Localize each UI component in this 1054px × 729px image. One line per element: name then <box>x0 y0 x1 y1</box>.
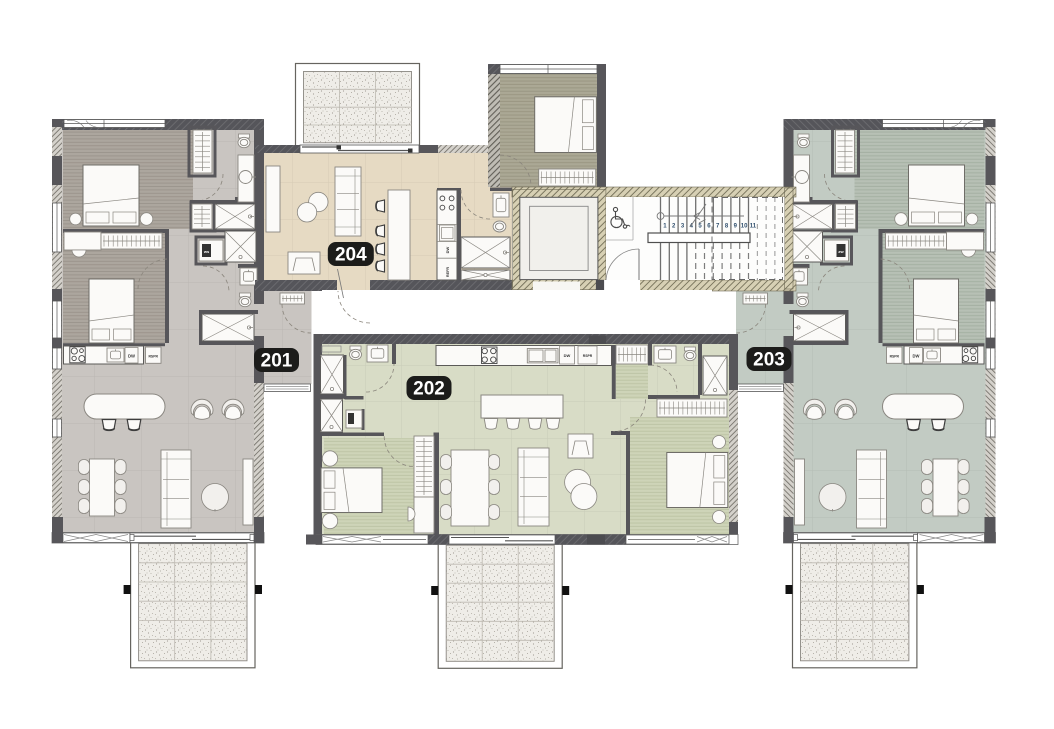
svg-text:201: 201 <box>261 351 293 372</box>
svg-text:RSPR: RSPR <box>583 354 593 358</box>
svg-text:11: 11 <box>750 224 757 230</box>
svg-text:204: 204 <box>335 245 367 266</box>
svg-text:DW: DW <box>564 353 571 358</box>
svg-text:202: 202 <box>413 379 445 400</box>
svg-text:DW: DW <box>913 354 920 359</box>
svg-text:RSPR: RSPR <box>890 355 900 359</box>
svg-text:RSPR: RSPR <box>148 355 158 359</box>
svg-text:ws: ws <box>203 249 210 254</box>
svg-text:DW: DW <box>445 246 450 253</box>
svg-text:203: 203 <box>753 350 785 371</box>
svg-text:ws: ws <box>838 249 845 254</box>
svg-text:REFR: REFR <box>446 267 450 278</box>
svg-text:10: 10 <box>741 224 748 230</box>
svg-text:DW: DW <box>128 354 135 359</box>
